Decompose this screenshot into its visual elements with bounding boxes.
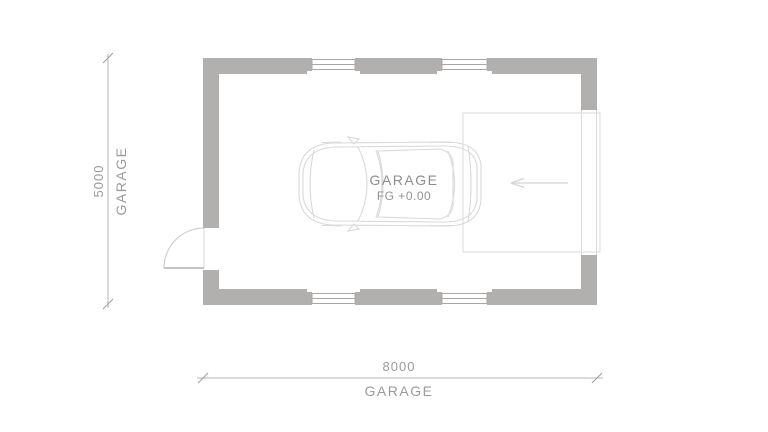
wall-left-upper-segment (203, 58, 219, 228)
door-swing-icon (164, 228, 204, 268)
wall-top-mid-segment (360, 58, 437, 74)
floor-plan-canvas: 5000 GARAGE 8000 GARAGE GARAGE FG +0.00 (0, 0, 768, 432)
wall-left-lower-segment (203, 270, 219, 305)
dimension-height: 5000 GARAGE (91, 53, 129, 309)
window-icon (307, 289, 360, 305)
room-annotation: GARAGE FG +0.00 (370, 172, 439, 203)
room-name-label: GARAGE (370, 172, 439, 188)
window-icon (437, 289, 492, 305)
dimension-height-value: 5000 (91, 165, 106, 198)
window-icon (437, 58, 492, 74)
dimension-height-label: GARAGE (113, 147, 129, 216)
wall-right-upper-segment (581, 58, 597, 110)
floor-level-label: FG +0.00 (377, 189, 431, 203)
wall-right-lower-segment (581, 255, 597, 305)
dimension-width: 8000 GARAGE (197, 359, 603, 399)
window-icon (307, 58, 360, 74)
dimension-width-label: GARAGE (365, 383, 434, 399)
floor-plan-drawing: 5000 GARAGE 8000 GARAGE GARAGE FG +0.00 (0, 0, 768, 432)
wall-bottom-mid-segment (360, 289, 437, 305)
dimension-width-value: 8000 (383, 359, 416, 374)
